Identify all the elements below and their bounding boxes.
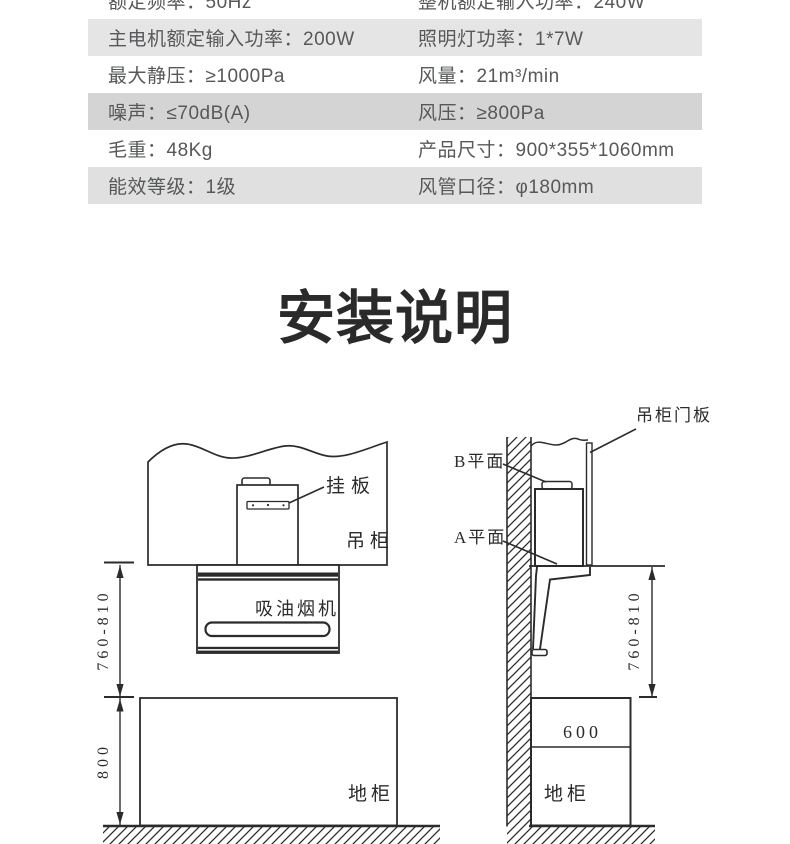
cabinet-break-line: [531, 438, 588, 446]
mounting-plate-hole: [267, 504, 269, 506]
dim-arrow-up: [116, 699, 123, 712]
plane-a-label: A平面: [454, 529, 506, 548]
cabinet-door-panel: [587, 443, 593, 565]
hood-chimney: [237, 485, 298, 565]
base-cabinet-label-front: 地柜: [348, 785, 394, 806]
hood-height-dimension-front: 760-810: [95, 565, 113, 695]
base-cabinet-label-side: 地柜: [544, 785, 590, 806]
dim-arrow-up: [648, 568, 655, 581]
dim-arrow-down: [648, 684, 655, 697]
plane-b-label: B平面: [454, 453, 505, 472]
hood-bottom-stripe: [198, 647, 338, 649]
mounting-plate-hole: [282, 504, 284, 506]
dim-arrow-down: [116, 812, 123, 825]
counter-depth-label: 600: [563, 723, 602, 743]
dim-arrow-down: [116, 684, 123, 697]
hood-chimney-side: [535, 489, 583, 566]
hood-top-stripe: [198, 578, 338, 580]
hood-height-dimension-side: 760-810: [626, 565, 644, 695]
base-cabinet-side: [531, 698, 631, 826]
base-cabinet: [140, 698, 397, 826]
hood-side-profile-back: [533, 567, 537, 649]
product-detail-page: 额定频率：50Hz 整机额定输入功率：240W 主电机额定输入功率：200W 照…: [0, 0, 790, 844]
wall-hatch: [507, 437, 531, 827]
floor-hatch: [507, 827, 655, 844]
range-hood-label: 吸油烟机: [255, 600, 339, 620]
hang-plate-label: 挂板: [326, 477, 376, 498]
hood-side-profile-front: [540, 567, 590, 649]
dim-arrow-up: [116, 566, 123, 579]
chimney-flange-side: [542, 482, 572, 490]
floor-hatch: [103, 827, 440, 844]
hood-side-foot: [532, 650, 547, 656]
counter-height-dimension: 800: [95, 696, 113, 826]
door-panel-leader-line: [590, 429, 636, 453]
hood-vent-slot: [206, 623, 330, 637]
cabinet-door-panel-label: 吊柜门板: [636, 407, 712, 426]
wall-cabinet-label: 吊柜: [346, 532, 394, 553]
mounting-plate-hole: [252, 504, 254, 506]
hood-bottom-stripe: [198, 651, 338, 653]
hood-top-stripe: [198, 573, 338, 577]
